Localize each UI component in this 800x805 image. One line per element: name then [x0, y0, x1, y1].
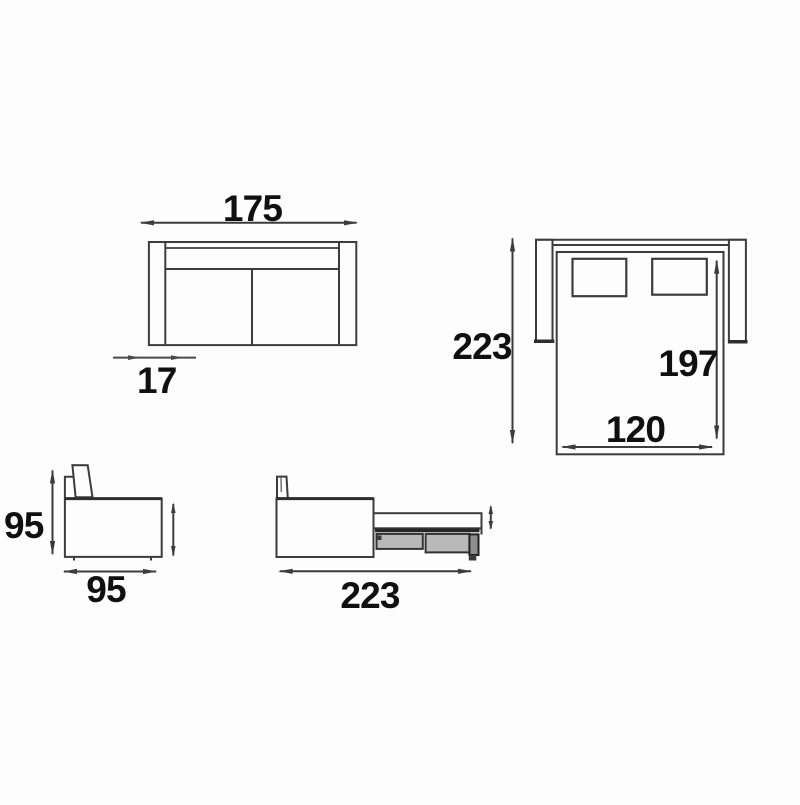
- svg-text:223: 223: [340, 575, 400, 616]
- svg-text:95: 95: [86, 569, 126, 610]
- svg-text:120: 120: [606, 409, 666, 450]
- svg-text:223: 223: [452, 326, 512, 367]
- svg-text:95: 95: [4, 505, 44, 546]
- svg-text:17: 17: [137, 360, 177, 401]
- svg-text:197: 197: [658, 343, 717, 384]
- svg-text:175: 175: [223, 188, 283, 229]
